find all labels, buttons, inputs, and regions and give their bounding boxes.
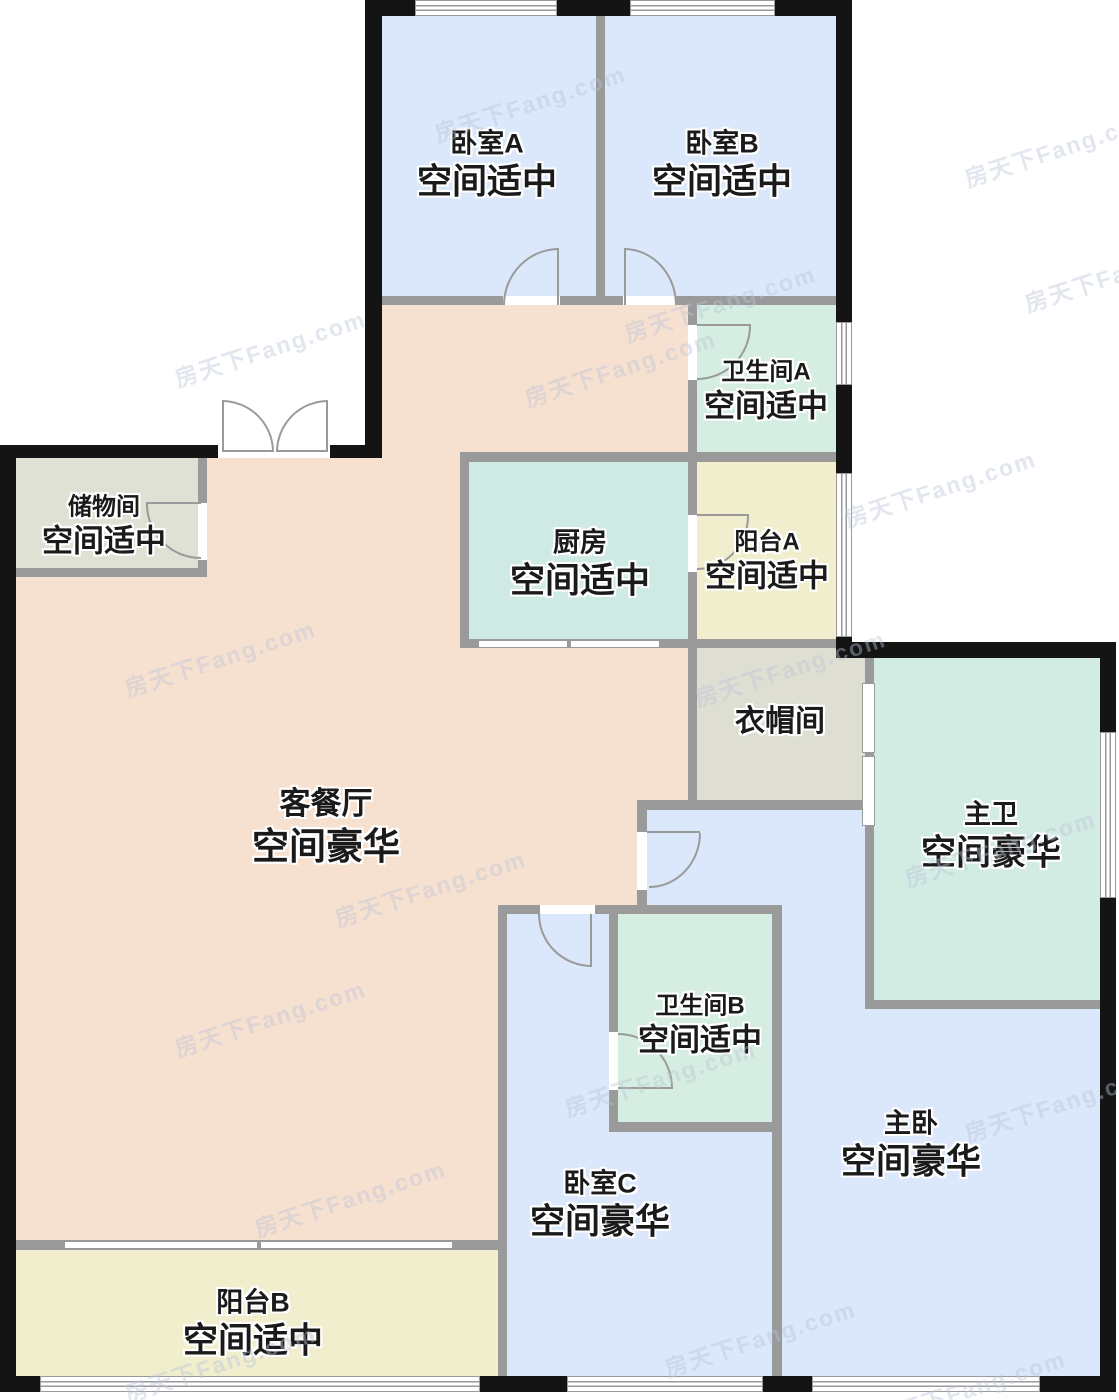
watermark: 房天下Fang.com (840, 440, 1040, 534)
wall-exterior-master-bath-top (836, 642, 1116, 658)
wall-bathroom-b-left (609, 914, 618, 1132)
wall-kitchen-left (460, 452, 469, 648)
door-leaf-master-suite (647, 831, 700, 833)
sliding-door-kitchen (570, 640, 660, 648)
wall-cloakroom-bottom (637, 800, 875, 810)
wall-bathroom-b-right (772, 905, 782, 1382)
entry-door-right-leaf (276, 400, 328, 452)
wall-bedroom-divider (596, 16, 605, 296)
door-leaf-bedroom-b (624, 248, 626, 305)
door-gap-master-suite (637, 832, 647, 890)
wall-bedrooms-bottom (382, 296, 836, 305)
door-leaf-balcony-a (697, 514, 749, 516)
watermark: 房天下Fang.com (170, 300, 370, 394)
door-gap-bathroom-b (609, 1032, 618, 1090)
room-grade: 空间豪华 (841, 1143, 981, 1182)
room-grade: 空间适中 (704, 390, 828, 425)
room-label-bedroom-a: 卧室A 空间适中 (417, 128, 557, 201)
room-label-living-dining: 客餐厅 空间豪华 (252, 787, 400, 867)
room-label-balcony-b: 阳台B 空间适中 (183, 1287, 323, 1360)
room-label-bathroom-b: 卫生间B 空间适中 (638, 994, 762, 1059)
entry-door-left-leaf (222, 400, 274, 452)
room-name: 储物间 (42, 495, 166, 522)
room-label-bathroom-a: 卫生间A 空间适中 (704, 360, 828, 425)
sliding-door-balcony-b (64, 1241, 258, 1249)
wall-exterior-bottom (480, 1376, 567, 1392)
wall-exterior-entry (0, 445, 218, 458)
room-fill-living-dining (382, 305, 688, 460)
room-name: 阳台B (183, 1287, 323, 1317)
room-grade: 空间豪华 (252, 826, 400, 867)
sliding-door-master-bath (862, 756, 875, 826)
room-name: 卫生间B (638, 994, 762, 1021)
wall-exterior-bedroom-a-left (365, 0, 382, 458)
window-balcony-a (836, 473, 852, 637)
room-grade: 空间适中 (638, 1024, 762, 1059)
window-master-bedroom (812, 1376, 1040, 1392)
room-name: 卧室A (417, 128, 557, 158)
window-bedroom-a (415, 0, 557, 16)
room-name: 卫生间A (704, 360, 828, 387)
wall-exterior-right-lower (1100, 658, 1116, 732)
wall-bathroom-b-bottom (609, 1122, 782, 1132)
floorplan-canvas: 卧室A 空间适中 卧室B 空间适中 卫生间A 空间适中 储物间 空间适中 厨房 … (0, 0, 1119, 1400)
sliding-door-balcony-b (260, 1241, 453, 1249)
room-grade: 空间适中 (42, 525, 166, 560)
room-label-bedroom-c: 卧室C 空间豪华 (530, 1168, 670, 1241)
sliding-door-master-bath (862, 683, 875, 753)
window-balcony-b (40, 1376, 480, 1392)
door-leaf-bedroom-a (557, 248, 559, 305)
wall-exterior-top (557, 0, 630, 16)
room-label-storage: 储物间 空间适中 (42, 495, 166, 560)
room-label-cloakroom: 衣帽间 (735, 705, 825, 739)
room-grade: 空间适中 (183, 1322, 323, 1361)
room-grade: 空间豪华 (530, 1203, 670, 1242)
room-grade: 空间适中 (510, 562, 650, 601)
wall-bedroom-c-left (498, 905, 507, 1382)
wall-kitchen-top (460, 452, 852, 462)
room-label-bedroom-b: 卧室B 空间适中 (652, 128, 792, 201)
door-gap-bathroom-a (688, 325, 697, 380)
wall-cloakroom-left (688, 648, 697, 800)
window-bedroom-c (567, 1376, 763, 1392)
wall-storage-bottom (16, 568, 207, 577)
window-bathroom-a (836, 322, 852, 385)
room-grade: 空间适中 (417, 163, 557, 202)
door-leaf-bedroom-c (590, 914, 592, 967)
room-name: 主卧 (841, 1108, 981, 1138)
wall-exterior-entry (330, 445, 382, 458)
window-master-bath (1100, 732, 1116, 898)
wall-exterior-right-lower (1100, 898, 1116, 1392)
room-grade: 空间适中 (652, 163, 792, 202)
wall-exterior-right-upper (836, 385, 852, 473)
watermark: 房天下Fang.com (960, 100, 1119, 194)
room-name: 阳台A (705, 530, 829, 557)
wall-exterior-left (0, 445, 16, 1392)
watermark: 房天下Fang.com (1020, 225, 1119, 319)
room-grade: 空间豪华 (921, 834, 1061, 873)
room-grade: 空间适中 (705, 560, 829, 595)
room-name: 衣帽间 (735, 705, 825, 739)
door-gap-balcony-a (688, 515, 697, 572)
wall-master-bath-bottom (865, 1000, 1116, 1009)
room-name: 客餐厅 (252, 787, 400, 822)
room-label-kitchen: 厨房 空间适中 (510, 527, 650, 600)
room-name: 卧室C (530, 1168, 670, 1198)
room-name: 厨房 (510, 527, 650, 557)
room-name: 主卫 (921, 799, 1061, 829)
wall-exterior-bottom (1040, 1376, 1116, 1392)
door-leaf-bathroom-b (618, 1087, 673, 1089)
door-leaf-bathroom-a (697, 324, 751, 326)
wall-exterior-right-upper (836, 0, 852, 322)
room-label-master-bedroom: 主卧 空间豪华 (841, 1108, 981, 1181)
door-gap-bedroom-c (540, 905, 595, 914)
room-name: 卧室B (652, 128, 792, 158)
sliding-door-kitchen (478, 640, 568, 648)
room-label-balcony-a: 阳台A 空间适中 (705, 530, 829, 595)
wall-exterior-bottom (763, 1376, 812, 1392)
window-bedroom-b (630, 0, 775, 16)
room-label-master-bath: 主卫 空间豪华 (921, 799, 1061, 872)
